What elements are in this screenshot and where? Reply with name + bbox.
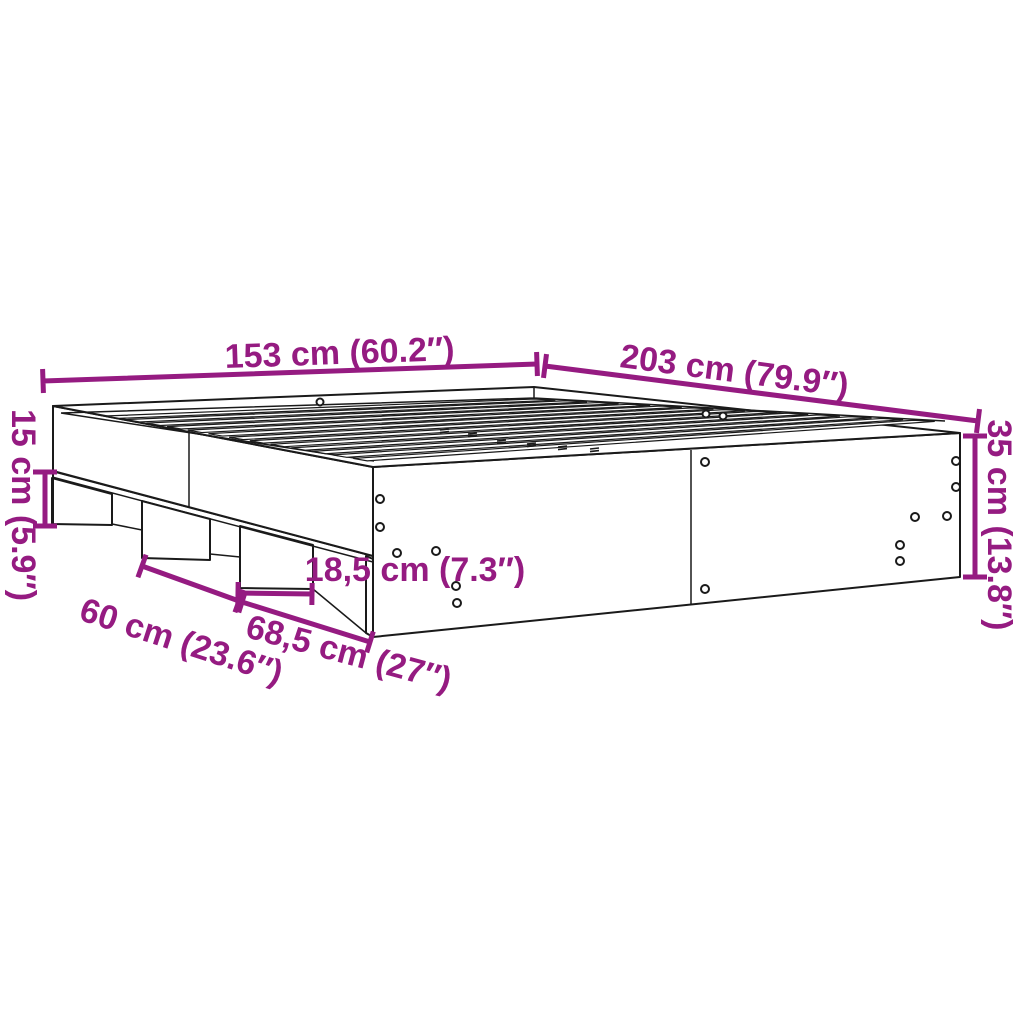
- dim-label-frame-length: 203 cm (79.9″): [618, 337, 851, 405]
- screw-hole: [453, 599, 461, 607]
- bed-frame-diagram-page: 153 cm (60.2″) 203 cm (79.9″) 15 cm (5.9…: [0, 0, 1024, 1024]
- screw-hole: [703, 411, 710, 418]
- screw-hole: [701, 585, 709, 593]
- screw-hole: [896, 557, 904, 565]
- screw-hole: [896, 541, 904, 549]
- dim-label-frame-width: 153 cm (60.2″): [224, 330, 455, 376]
- screw-hole: [317, 399, 324, 406]
- dim-label-total-height: 35 cm (13.8″): [980, 420, 1018, 631]
- screw-hole: [701, 458, 709, 466]
- front-panel: [373, 433, 960, 637]
- dim-label-plinth-height: 15 cm (5.9″): [4, 409, 42, 601]
- screw-hole: [911, 513, 919, 521]
- screw-hole: [720, 413, 727, 420]
- screw-hole: [943, 512, 951, 520]
- screw-hole: [376, 523, 384, 531]
- dim-line-support-spacing: [138, 555, 243, 613]
- screw-hole: [376, 495, 384, 503]
- dim-label-support-block-width: 18,5 cm (7.3″): [305, 551, 525, 589]
- bed-frame-dimension-drawing: 153 cm (60.2″) 203 cm (79.9″) 15 cm (5.9…: [0, 0, 1024, 1024]
- screw-hole: [952, 483, 960, 491]
- screw-hole: [952, 457, 960, 465]
